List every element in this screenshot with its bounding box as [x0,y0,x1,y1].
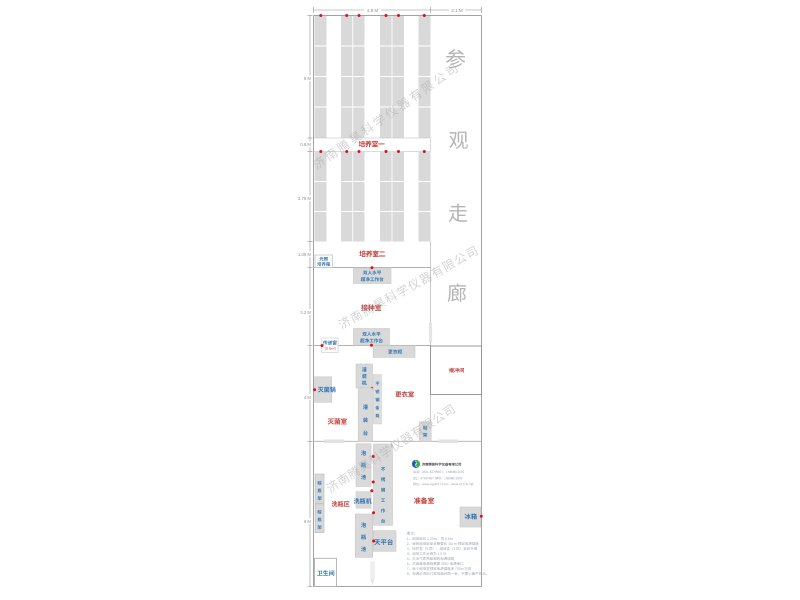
svg-text:6 M: 6 M [304,519,312,524]
svg-text:1.05 M: 1.05 M [298,252,312,257]
svg-text:4 M: 4 M [304,395,312,400]
svg-text:3.75 M: 3.75 M [298,196,312,201]
svg-text:0.6 M: 0.6 M [300,142,311,147]
svg-text:4.8 M: 4.8 M [367,8,379,13]
svg-text:2.1 M: 2.1 M [451,8,463,13]
svg-text:5 M: 5 M [304,76,312,81]
svg-text:3.2 M: 3.2 M [300,310,311,315]
